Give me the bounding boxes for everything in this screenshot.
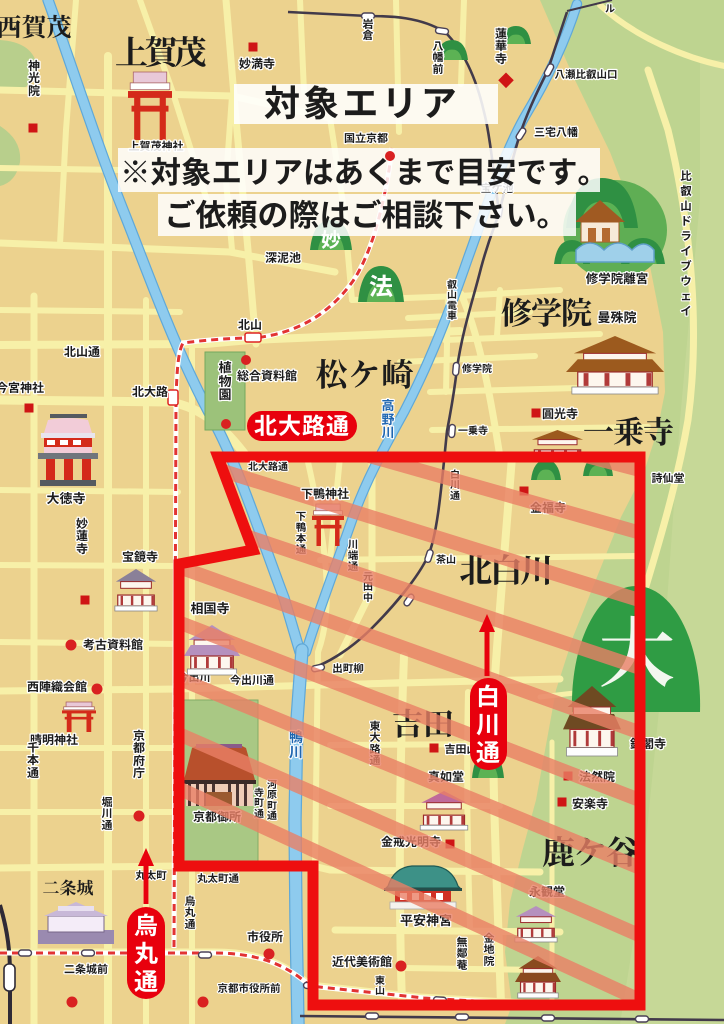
svg-text:対象エリア: 対象エリア bbox=[264, 75, 460, 127]
svg-text:二条城: 二条城 bbox=[43, 874, 94, 899]
svg-text:ラ: ラ bbox=[680, 228, 692, 244]
svg-text:深泥池: 深泥池 bbox=[265, 249, 301, 266]
svg-text:園: 園 bbox=[218, 384, 231, 403]
svg-text:宝鏡寺: 宝鏡寺 bbox=[122, 548, 158, 565]
svg-text:ブ: ブ bbox=[680, 258, 692, 274]
svg-text:山: 山 bbox=[680, 198, 692, 214]
svg-text:大徳寺: 大徳寺 bbox=[46, 488, 85, 507]
svg-text:ド: ド bbox=[680, 213, 692, 229]
svg-text:下鴨神社: 下鴨神社 bbox=[301, 485, 349, 502]
svg-text:北大路通: 北大路通 bbox=[248, 458, 288, 473]
svg-text:イ: イ bbox=[680, 243, 692, 259]
svg-text:川: 川 bbox=[289, 742, 303, 762]
svg-text:考古資料館: 考古資料館 bbox=[83, 636, 143, 653]
svg-text:通: 通 bbox=[476, 733, 500, 768]
svg-text:松ケ崎: 松ケ崎 bbox=[315, 350, 414, 396]
svg-text:一乗寺: 一乗寺 bbox=[583, 407, 674, 452]
svg-text:西陣織会館: 西陣織会館 bbox=[27, 678, 87, 695]
svg-text:叡: 叡 bbox=[680, 183, 692, 199]
svg-text:通: 通 bbox=[27, 764, 39, 781]
svg-text:三宅八幡: 三宅八幡 bbox=[534, 124, 578, 140]
svg-text:ウ: ウ bbox=[680, 273, 692, 289]
svg-text:上賀茂: 上賀茂 bbox=[115, 27, 207, 74]
svg-text:通: 通 bbox=[450, 487, 460, 502]
svg-text:茶山: 茶山 bbox=[436, 551, 456, 566]
svg-text:通: 通 bbox=[134, 962, 158, 997]
svg-text:京都市役所前: 京都市役所前 bbox=[218, 981, 281, 996]
svg-text:ェ: ェ bbox=[680, 288, 692, 304]
svg-text:菴: 菴 bbox=[457, 957, 468, 973]
svg-text:修学院: 修学院 bbox=[462, 360, 492, 375]
svg-text:圓光寺: 圓光寺 bbox=[542, 405, 578, 422]
svg-text:北大路: 北大路 bbox=[132, 383, 168, 400]
svg-text:曼殊院: 曼殊院 bbox=[597, 307, 636, 326]
svg-text:出町柳: 出町柳 bbox=[332, 661, 364, 676]
svg-text:ご依頼の際はご相談下さい。: ご依頼の際はご相談下さい。 bbox=[165, 190, 568, 235]
svg-text:妙満寺: 妙満寺 bbox=[239, 55, 275, 72]
svg-text:丸太町: 丸太町 bbox=[135, 868, 167, 883]
svg-text:一乗寺: 一乗寺 bbox=[458, 422, 488, 437]
svg-text:法: 法 bbox=[369, 267, 393, 302]
svg-text:庁: 庁 bbox=[133, 764, 145, 781]
svg-text:寺: 寺 bbox=[76, 540, 88, 557]
svg-text:詩仙堂: 詩仙堂 bbox=[652, 470, 685, 486]
svg-text:総合資料館: 総合資料館 bbox=[237, 367, 297, 384]
svg-text:川: 川 bbox=[381, 422, 394, 441]
svg-text:今出川通: 今出川通 bbox=[230, 672, 274, 688]
svg-text:相国寺: 相国寺 bbox=[190, 598, 229, 617]
svg-text:北山通: 北山通 bbox=[64, 343, 100, 360]
svg-text:八瀬比叡山口: 八瀬比叡山口 bbox=[555, 67, 618, 82]
svg-text:近代美術館: 近代美術館 bbox=[332, 953, 392, 970]
svg-text:倉: 倉 bbox=[363, 27, 374, 43]
svg-text:車: 車 bbox=[447, 307, 457, 322]
svg-text:院: 院 bbox=[28, 82, 40, 99]
svg-text:中: 中 bbox=[363, 589, 373, 604]
svg-text:市役所: 市役所 bbox=[247, 928, 283, 945]
svg-text:通: 通 bbox=[102, 817, 113, 833]
svg-text:山: 山 bbox=[375, 982, 385, 997]
svg-text:修学院離宮: 修学院離宮 bbox=[586, 268, 649, 287]
svg-text:丸太町通: 丸太町通 bbox=[197, 871, 239, 886]
svg-text:通: 通 bbox=[267, 807, 277, 822]
svg-text:安楽寺: 安楽寺 bbox=[572, 795, 608, 812]
svg-text:イ: イ bbox=[680, 303, 692, 319]
svg-text:二条城前: 二条城前 bbox=[64, 961, 108, 977]
svg-text:北山: 北山 bbox=[238, 316, 262, 333]
svg-text:国立京都: 国立京都 bbox=[344, 130, 388, 146]
svg-text:比: 比 bbox=[680, 168, 692, 184]
svg-text:修学院: 修学院 bbox=[501, 288, 592, 333]
svg-text:寺: 寺 bbox=[495, 50, 507, 67]
svg-text:北大路通: 北大路通 bbox=[254, 407, 350, 441]
svg-text:ル: ル bbox=[605, 0, 615, 15]
svg-text:通: 通 bbox=[185, 916, 196, 932]
svg-text:院: 院 bbox=[484, 953, 495, 969]
svg-text:西賀茂: 西賀茂 bbox=[0, 8, 72, 44]
svg-text:※対象エリアはあくまで目安です。: ※対象エリアはあくまで目安です。 bbox=[120, 148, 608, 192]
svg-text:今宮神社: 今宮神社 bbox=[0, 379, 44, 396]
